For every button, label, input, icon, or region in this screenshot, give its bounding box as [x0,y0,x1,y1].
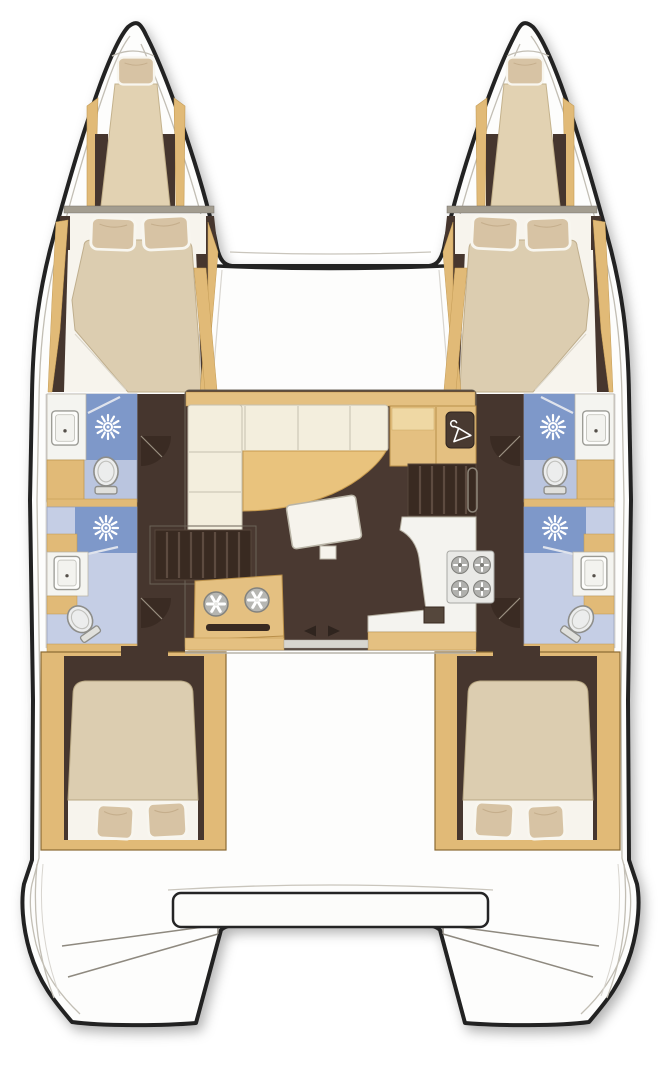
hob-burner [474,581,491,598]
galley-sink-unit [194,575,284,647]
galley-sink-square [424,607,444,623]
port-aft-cabin [41,646,226,850]
hob-burner [474,557,491,574]
saloon-front-shelf [186,392,475,406]
nav-cabinet [390,406,476,466]
cabinet-panel [392,408,434,430]
aft-cabinet-face [185,638,284,650]
port-companionway-steps [150,526,256,584]
catamaran-deck-plan [0,0,661,1080]
port-heads [47,394,185,655]
round-sink-right [245,588,269,612]
saloon [150,390,494,653]
sliding-door-track [284,640,368,648]
aft-cabinet-face [368,632,476,650]
hob-burner [452,581,469,598]
table-pedestal [320,546,336,559]
starboard-companionway-steps [408,464,477,516]
hob-burner [452,557,469,574]
starboard-heads [476,394,614,655]
trampoline-edge-line [230,252,431,254]
deck-plan-svg [0,0,661,1080]
sofa-arm [188,405,242,535]
round-sink-left [204,592,228,616]
stern-bench [173,893,488,927]
starboard-aft-cabin [435,646,620,850]
hanging-locker [446,412,474,448]
port-forward-cabin [48,206,218,392]
galley-slot [206,624,270,631]
starboard-forward-cabin [443,206,613,392]
